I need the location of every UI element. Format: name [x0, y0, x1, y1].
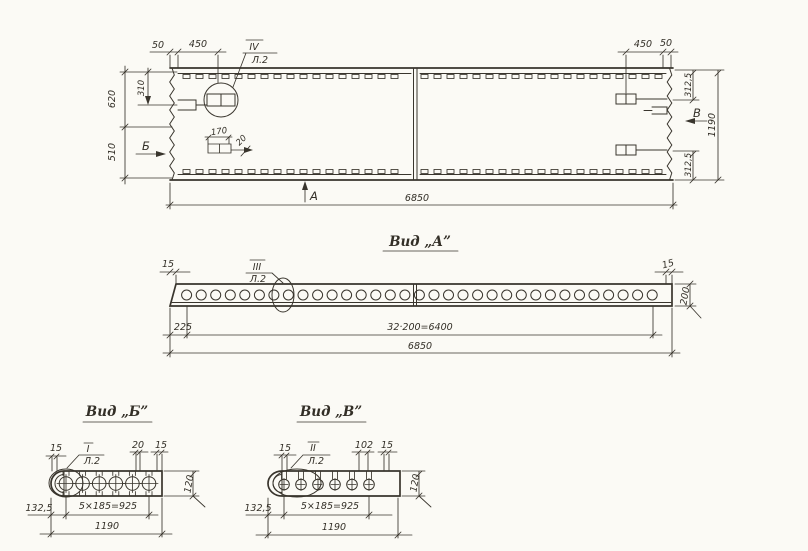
edge-notch: [499, 170, 506, 174]
anchor-hole: [458, 290, 468, 300]
dim-3125-top: 312,5: [684, 73, 694, 97]
edge-notch: [642, 170, 649, 174]
anchor-hole: [371, 290, 381, 300]
dim-lines-top-right: [618, 49, 678, 93]
panel-technical-drawing: IV Л.2 170 20 50 450 450 50 620 310 510 …: [0, 0, 808, 551]
edge-notch: [551, 170, 558, 174]
anchor-hole: [269, 290, 279, 300]
panel-left-edge: [170, 68, 175, 180]
view-a-dim-15-left-label: 15: [162, 259, 174, 270]
anchor-hole: [385, 290, 395, 300]
edge-notch: [512, 75, 519, 79]
dim-50-left: 50: [152, 40, 164, 51]
edge-notch: [655, 170, 662, 174]
hole-crosshair: [107, 475, 125, 493]
edge-notch: [339, 75, 346, 79]
view-a-dim-15-right-label: 15: [661, 258, 676, 272]
dim-lines-top-left: [150, 49, 226, 83]
edge-notch: [248, 170, 255, 174]
edge-notch: [183, 170, 190, 174]
hole-crosshair: [140, 475, 158, 493]
anchor-hole: [400, 290, 410, 300]
view-b-dim-1190-label: 1190: [95, 521, 119, 532]
edge-notch: [222, 75, 229, 79]
anchor-hole: [327, 290, 337, 300]
callout-i-ref: I: [87, 444, 90, 455]
anchor-hole: [342, 290, 352, 300]
edge-notch: [564, 170, 571, 174]
edge-notch: [287, 170, 294, 174]
anchor-hole: [240, 290, 250, 300]
callout-ii-sheet: Л.2: [307, 456, 324, 467]
edge-notch: [339, 170, 346, 174]
view-v-dim-1190-label: 1190: [322, 522, 346, 533]
stud-lines: [331, 471, 339, 491]
anchor-hole: [313, 290, 323, 300]
view-b-dim-15-right-label: 15: [155, 440, 167, 451]
view-b-holes: [57, 471, 158, 496]
panel-right-edge: [667, 68, 672, 180]
edge-notch: [473, 75, 480, 79]
view-v-dims-top: [274, 450, 397, 471]
edge-notch: [365, 75, 372, 79]
edge-notch: [300, 75, 307, 79]
edge-notch: [222, 170, 229, 174]
view-v-callout-ellipse: [273, 469, 321, 497]
panel-seam: [414, 68, 418, 180]
edge-notch: [577, 75, 584, 79]
anchor-hole: [444, 290, 454, 300]
callout-iv-ref: IV: [249, 42, 260, 53]
edge-notch: [391, 170, 398, 174]
view-a-holes: [182, 290, 658, 300]
view-a-dim-15-right: [655, 269, 683, 284]
edge-notch: [577, 170, 584, 174]
view-v-dim-15-left-label: 15: [279, 443, 291, 454]
view-b-dim-20-label: 20: [132, 440, 144, 451]
anchor-hole: [225, 290, 235, 300]
edge-notch: [209, 170, 216, 174]
hole-crosshair: [57, 475, 75, 493]
edge-notch: [603, 170, 610, 174]
detail-circle-insert: [207, 94, 235, 106]
edge-notch: [352, 170, 359, 174]
dim-310-arrowhead: [145, 96, 151, 105]
view-a-dim-225-label: 225: [174, 322, 192, 333]
edge-notch: [447, 170, 454, 174]
stud-lines: [348, 471, 356, 491]
view-b: Вид „Б” I Л.2 15 20 15 120 132,5 5×185=9…: [25, 404, 205, 537]
edge-notch: [486, 170, 493, 174]
callout-iv-sheet: Л.2: [251, 55, 268, 66]
anchor-hole: [429, 290, 439, 300]
edge-notch: [655, 75, 662, 79]
edge-notch: [629, 75, 636, 79]
panel-inner-lines: [178, 74, 666, 175]
top-view: IV Л.2 170 20 50 450 450 50 620 310 510 …: [107, 38, 724, 209]
dim-3125-bottom: 312,5: [684, 153, 694, 177]
edge-notch: [525, 170, 532, 174]
dim-310: 310: [137, 80, 147, 96]
view-v-holes: [279, 471, 375, 491]
view-b-dim-120-label: 120: [183, 474, 197, 494]
edge-notch: [538, 75, 545, 79]
edge-notch: [235, 170, 242, 174]
view-v-strip: [268, 471, 400, 496]
marker-v-arrowhead: [685, 118, 695, 124]
view-v-dim-15-right-label: 15: [381, 440, 393, 451]
view-a-dim-spacing-label: 32·200=6400: [387, 322, 452, 333]
castellation: [183, 75, 662, 174]
anchor-hole: [647, 290, 657, 300]
anchor-hole: [604, 290, 614, 300]
edge-notch: [183, 75, 190, 79]
edge-notch: [378, 75, 385, 79]
edge-notch: [326, 170, 333, 174]
anchor-hole: [575, 290, 585, 300]
marker-v-label: В: [693, 106, 701, 120]
view-b-dims-top: [46, 450, 168, 471]
edge-notch: [473, 170, 480, 174]
hole-crosshair: [90, 475, 108, 493]
anchor-hole: [414, 290, 424, 300]
left-insert: [178, 100, 207, 110]
edge-notch: [616, 75, 623, 79]
callout-ii-ref: II: [310, 443, 316, 454]
anchor-hole: [633, 290, 643, 300]
dim-620: 620: [107, 90, 118, 108]
edge-notch: [590, 75, 597, 79]
edge-notch: [460, 170, 467, 174]
stud-lines: [280, 471, 288, 491]
dim-20: 20: [234, 133, 249, 148]
edge-notch: [421, 170, 428, 174]
anchor-hole: [211, 290, 221, 300]
marker-b-label: Б: [142, 139, 150, 153]
dim-50-right: 50: [660, 38, 672, 49]
edge-notch: [538, 170, 545, 174]
anchor-hole: [545, 290, 555, 300]
dim-170: 170: [210, 126, 227, 138]
stud-lines: [365, 471, 373, 491]
edge-notch: [365, 170, 372, 174]
callout-iii-ref: III: [253, 262, 262, 273]
callout-iii-sheet: Л.2: [249, 274, 266, 285]
view-b-dim-spacing-label: 5×185=925: [79, 501, 137, 512]
right-inserts: [616, 94, 667, 155]
edge-notch: [525, 75, 532, 79]
anchor-hole: [196, 290, 206, 300]
edge-notch: [499, 75, 506, 79]
anchor-hole: [516, 290, 526, 300]
hole-crosshair: [123, 475, 141, 493]
view-v-dim-spacing-label: 5×185=925: [301, 501, 359, 512]
edge-notch: [590, 170, 597, 174]
view-b-dim-1325-label: 132,5: [25, 503, 52, 514]
marker-b-arrowhead: [156, 151, 166, 157]
anchor-hole: [618, 290, 628, 300]
edge-notch: [564, 75, 571, 79]
edge-notch: [642, 75, 649, 79]
marker-a-label: А: [309, 189, 318, 203]
edge-notch: [261, 170, 268, 174]
edge-notch: [434, 170, 441, 174]
anchor-hole: [502, 290, 512, 300]
edge-notch: [274, 75, 281, 79]
edge-notch: [447, 75, 454, 79]
anchor-hole: [473, 290, 483, 300]
view-v-title: Вид „В”: [299, 404, 362, 420]
view-v: Вид „В” II Л.2 15 102 15 120 132,5 5×185…: [244, 404, 431, 538]
dim-450-left: 450: [189, 39, 207, 50]
dim-510: 510: [107, 143, 118, 161]
view-a: Вид „А” III Л.2 15 15 200 225 32·200=640…: [160, 234, 701, 357]
view-a-dim-15-left: [160, 269, 190, 283]
edge-notch: [629, 170, 636, 174]
edge-notch: [616, 170, 623, 174]
edge-notch: [434, 75, 441, 79]
anchor-hole: [531, 290, 541, 300]
edge-notch: [313, 170, 320, 174]
edge-notch: [287, 75, 294, 79]
edge-notch: [326, 75, 333, 79]
edge-notch: [261, 75, 268, 79]
edge-notch: [460, 75, 467, 79]
dim-1190-side: 1190: [707, 113, 718, 137]
anchor-hole: [298, 290, 308, 300]
edge-notch: [486, 75, 493, 79]
dim-450-right: 450: [634, 39, 652, 50]
edge-notch: [248, 75, 255, 79]
edge-notch: [300, 170, 307, 174]
anchor-hole: [589, 290, 599, 300]
view-v-dim-120-label: 120: [409, 473, 423, 493]
edge-notch: [274, 170, 281, 174]
marker-a-arrowhead: [302, 181, 308, 190]
dim-6850-plan: 6850: [405, 193, 429, 204]
dim-lines-left: [120, 66, 177, 184]
anchor-hole: [487, 290, 497, 300]
edge-notch: [391, 75, 398, 79]
callout-i-sheet: Л.2: [83, 456, 100, 467]
edge-notch: [196, 170, 203, 174]
edge-notch: [551, 75, 558, 79]
anchor-hole: [254, 290, 264, 300]
edge-notch: [196, 75, 203, 79]
edge-notch: [378, 170, 385, 174]
view-b-dim-15-left-label: 15: [50, 443, 62, 454]
drawing-sheet: IV Л.2 170 20 50 450 450 50 620 310 510 …: [0, 0, 808, 551]
view-a-dim-6850-label: 6850: [408, 341, 432, 352]
anchor-hole: [283, 290, 293, 300]
panel-outline: [170, 68, 673, 180]
stud-lines: [297, 471, 305, 491]
anchor-hole: [182, 290, 192, 300]
edge-notch: [603, 75, 610, 79]
anchor-hole: [356, 290, 366, 300]
view-v-dim-102-label: 102: [355, 440, 373, 451]
view-v-dim-1325-label: 132,5: [244, 503, 271, 514]
edge-notch: [512, 170, 519, 174]
edge-notch: [209, 75, 216, 79]
view-b-title: Вид „Б”: [85, 404, 149, 420]
edge-notch: [313, 75, 320, 79]
view-a-title: Вид „А”: [388, 234, 451, 250]
edge-notch: [421, 75, 428, 79]
anchor-hole: [560, 290, 570, 300]
edge-notch: [352, 75, 359, 79]
